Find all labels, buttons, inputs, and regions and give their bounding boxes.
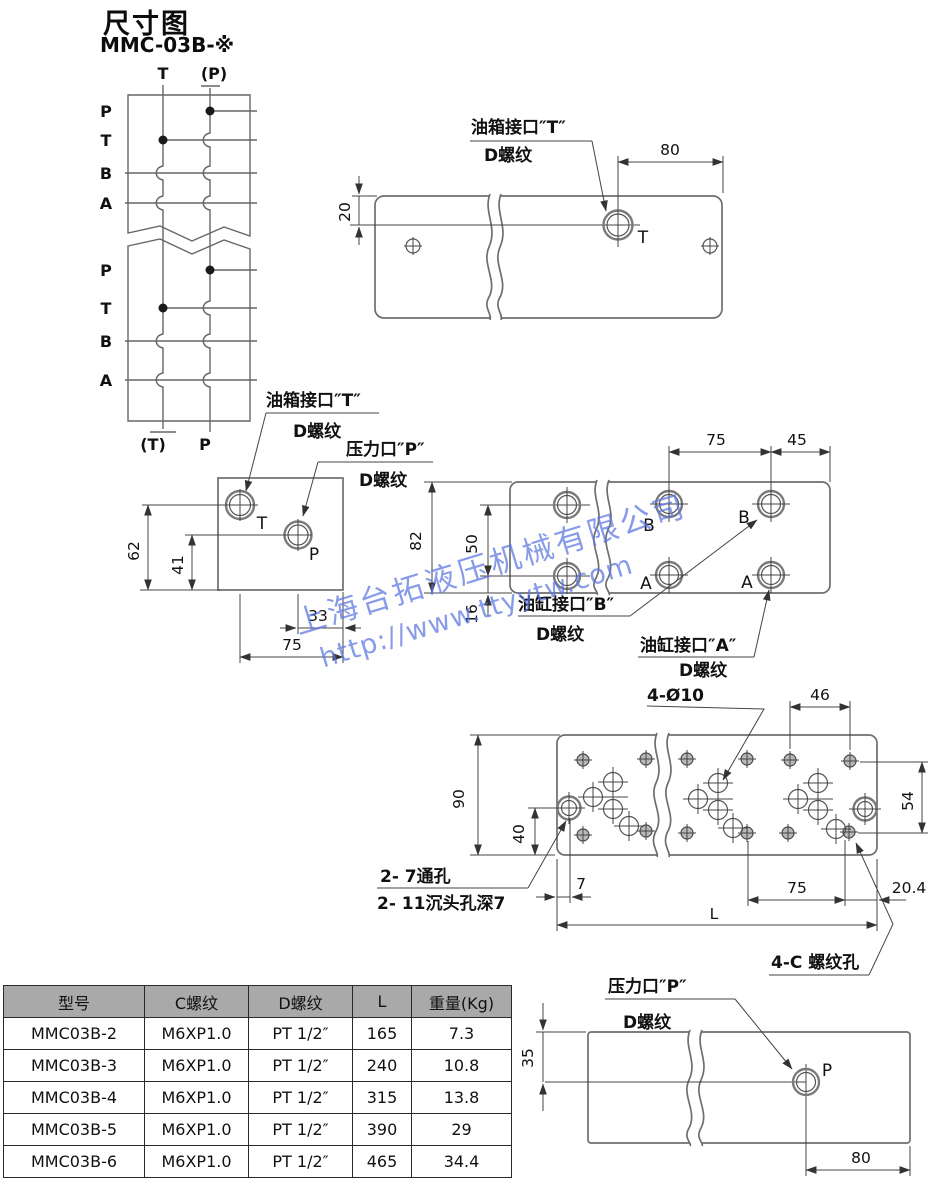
port-holes (578, 767, 851, 844)
cylinder-port-hole (752, 486, 790, 522)
thread-label: D螺纹 (536, 624, 585, 645)
col-length: L (353, 986, 412, 1018)
cell-c-thread: M6XP1.0 (145, 1082, 249, 1114)
cell-model: MMC03B-4 (4, 1082, 145, 1114)
dim-80: 80 (851, 1149, 871, 1167)
dim-75: 75 (706, 431, 726, 449)
mounting-hole (404, 237, 422, 255)
counterbore-label: 2- 11沉头孔深7 (377, 893, 505, 914)
thread-holes-label: 4-C 螺纹孔 (771, 952, 859, 973)
thread-label: D螺纹 (484, 145, 533, 166)
table-header-row: 型号 C螺纹 D螺纹 L 重量(Kg) (4, 986, 512, 1018)
table-row: MMC03B-5 M6XP1.0 PT 1/2″ 390 29 (4, 1114, 512, 1146)
tank-port-label: 油箱接口″T″ (471, 117, 566, 138)
dim-20-4: 20.4 (892, 879, 927, 897)
table-row: MMC03B-6 M6XP1.0 PT 1/2″ 465 34.4 (4, 1146, 512, 1178)
junction-dot (206, 266, 215, 275)
port-letter-p: P (309, 545, 319, 565)
cell-length: 315 (353, 1082, 412, 1114)
dim-L: L (710, 905, 719, 923)
mounting-face-view: 90 40 46 54 7 75 20.4 L 4-Ø10 (377, 686, 928, 975)
through-holes-label: 2- 7通孔 (380, 867, 451, 887)
dim-62: 62 (125, 541, 143, 561)
col-weight: 重量(Kg) (412, 986, 512, 1018)
junction-dot (159, 304, 168, 313)
schematic-bottom-t: (T) (140, 435, 166, 454)
a-b-port-side-view: 75 45 82 50 16 B B A A 油缸接口″B″ D螺纹 油缸接口″… (407, 431, 830, 681)
pressure-port-label: 压力口″P″ (608, 976, 687, 997)
cylinder-b-label: 油缸接口″B″ (518, 594, 615, 615)
dim-75: 75 (282, 636, 302, 654)
cylinder-port-hole (650, 557, 688, 593)
cell-length: 390 (353, 1114, 412, 1146)
junction-dot (159, 136, 168, 145)
cell-d-thread: PT 1/2″ (249, 1082, 353, 1114)
col-d-thread: D螺纹 (249, 986, 353, 1018)
cell-d-thread: PT 1/2″ (249, 1114, 353, 1146)
dim-80: 80 (660, 141, 680, 159)
schematic-bottom-p: P (199, 435, 211, 454)
cell-model: MMC03B-6 (4, 1146, 145, 1178)
cell-model: MMC03B-5 (4, 1114, 145, 1146)
cell-model: MMC03B-3 (4, 1050, 145, 1082)
schematic-top-p: (P) (201, 64, 227, 83)
thread-label: D螺纹 (359, 470, 408, 491)
dim-20: 20 (336, 202, 354, 222)
port-letter-b: B (738, 508, 750, 528)
valve-holes-label: 4-Ø10 (647, 686, 704, 706)
col-c-thread: C螺纹 (145, 986, 249, 1018)
dim-40: 40 (510, 824, 528, 844)
pressure-port-label: 压力口″P″ (346, 439, 425, 460)
junction-dot (206, 107, 215, 116)
schematic-row-label: P (100, 102, 112, 121)
dim-75: 75 (787, 879, 807, 897)
cell-weight: 34.4 (412, 1146, 512, 1178)
cell-weight: 29 (412, 1114, 512, 1146)
port-letter-p: P (822, 1061, 832, 1081)
schematic-row-label: T (101, 299, 112, 318)
cell-length: 240 (353, 1050, 412, 1082)
thread-label: D螺纹 (623, 1012, 672, 1033)
table-row: MMC03B-2 M6XP1.0 PT 1/2″ 165 7.3 (4, 1018, 512, 1050)
dim-82: 82 (407, 531, 425, 551)
cell-length: 465 (353, 1146, 412, 1178)
t-p-port-end-view: 62 41 33 75 油箱接口″T″ D螺纹 压力口″P″ D螺纹 T P (125, 390, 433, 663)
table-row: MMC03B-3 M6XP1.0 PT 1/2″ 240 10.8 (4, 1050, 512, 1082)
tank-port-label: 油箱接口″T″ (266, 390, 361, 411)
cell-length: 165 (353, 1018, 412, 1050)
cell-c-thread: M6XP1.0 (145, 1050, 249, 1082)
cylinder-port-hole (554, 487, 580, 523)
thread-label: D螺纹 (679, 660, 728, 681)
port-letter-a: A (741, 573, 753, 593)
cell-c-thread: M6XP1.0 (145, 1114, 249, 1146)
thread-label: D螺纹 (293, 421, 342, 442)
dim-33: 33 (308, 607, 328, 625)
dim-35: 35 (519, 1048, 537, 1068)
cell-d-thread: PT 1/2″ (249, 1050, 353, 1082)
cylinder-port-hole (650, 486, 688, 522)
port-letter-a: A (640, 574, 652, 594)
dim-7: 7 (576, 875, 586, 893)
hydraulic-symbol-schematic: T (P) P T B A P T B A (T) P (100, 64, 257, 454)
port-letter-t: T (256, 514, 268, 534)
cylinder-port-hole (752, 557, 790, 593)
dim-46: 46 (810, 686, 830, 704)
schematic-row-label: T (101, 131, 112, 150)
dim-54: 54 (899, 791, 917, 811)
port-letter-t: T (637, 228, 649, 248)
mounting-hole (701, 237, 719, 255)
dim-41: 41 (169, 555, 187, 575)
dim-16: 16 (463, 604, 481, 624)
cell-d-thread: PT 1/2″ (249, 1146, 353, 1178)
cell-c-thread: M6XP1.0 (145, 1146, 249, 1178)
cylinder-a-label: 油缸接口″A″ (640, 635, 737, 656)
pressure-port-side-view: P 压力口″P″ D螺纹 35 80 (519, 976, 910, 1176)
schematic-row-label: B (100, 164, 112, 183)
table-row: MMC03B-4 M6XP1.0 PT 1/2″ 315 13.8 (4, 1082, 512, 1114)
schematic-row-label: B (100, 332, 112, 351)
drawing-page: 尺寸图 MMC-03B-※ T (P) P T B A P (0, 0, 935, 1184)
schematic-top-t: T (158, 64, 169, 83)
cell-weight: 10.8 (412, 1050, 512, 1082)
dim-50: 50 (463, 534, 481, 554)
cell-weight: 13.8 (412, 1082, 512, 1114)
tank-port-side-view: 80 20 油箱接口″T″ D螺纹 T (336, 117, 723, 320)
spec-table: 型号 C螺纹 D螺纹 L 重量(Kg) MMC03B-2 M6XP1.0 PT … (3, 985, 512, 1178)
schematic-row-label: P (100, 261, 112, 280)
schematic-row-label: A (100, 194, 113, 213)
schematic-row-label: A (100, 371, 113, 390)
col-model: 型号 (4, 986, 145, 1018)
port-letter-b: B (643, 516, 655, 536)
dim-45: 45 (787, 431, 807, 449)
cell-d-thread: PT 1/2″ (249, 1018, 353, 1050)
cell-c-thread: M6XP1.0 (145, 1018, 249, 1050)
cell-model: MMC03B-2 (4, 1018, 145, 1050)
cell-weight: 7.3 (412, 1018, 512, 1050)
cylinder-port-hole (554, 558, 580, 594)
dim-90: 90 (450, 789, 468, 809)
